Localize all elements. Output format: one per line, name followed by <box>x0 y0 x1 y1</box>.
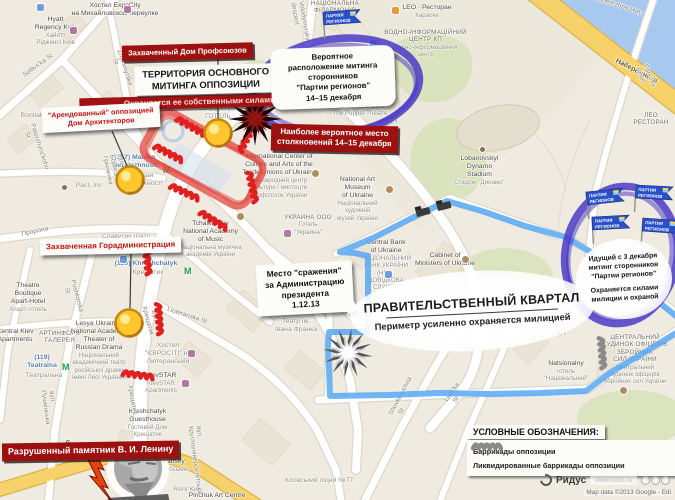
map-label: Lyps'ka St <box>443 388 464 408</box>
dot-poi-icon <box>62 185 67 190</box>
metro-station-icon: M <box>62 362 70 372</box>
bed-poi-icon <box>124 6 131 13</box>
ongoing-rally-guard-text: Охраняется силами милиции и охраной <box>591 285 660 306</box>
map-label: Central Kiev Apartments <box>0 328 38 344</box>
map-label: Parkova Road <box>634 63 654 84</box>
map-label: Shovkovychna St <box>387 399 408 420</box>
poi-poi-icon <box>620 387 627 394</box>
map-label: Theatre Boutique Apart-HotelАпарт-готель <box>4 282 52 313</box>
map-label: Хостел "ЄВРОСІТІ" на Лютеранській <box>142 342 194 366</box>
map-label: Volodymyrskyi descent <box>289 0 307 18</box>
poi-poi-icon <box>462 256 469 263</box>
government-quarter-title: ПРАВИТЕЛЬСТВЕННЫЙ КВАРТАЛ <box>363 290 580 315</box>
map-label: Liuteranska St <box>158 303 216 328</box>
license-icons <box>641 476 670 485</box>
map-label: Hyatt Regency KyivХайятт Рідженсі Київ <box>18 16 93 47</box>
map-label: вул. Круглоуніверситетська <box>186 425 203 441</box>
metro-station-icon: M <box>163 165 171 175</box>
map-label: (119) Teatralna <box>20 354 64 370</box>
callout-presidential-administration-battle: Место "сражения" за Администрацию презид… <box>256 261 355 317</box>
ridus-watermark: www.ridus.ru <box>590 476 637 485</box>
map-label: Natsionalnyготель "Національний" <box>540 360 592 383</box>
map-label: Lobanovskyi Dynamo StadiumСтадіон "Динам… <box>452 155 507 186</box>
map-label: KievSTARKievSTAR Apartments <box>138 372 184 395</box>
ridus-brand: Ридус <box>556 475 586 486</box>
poi-poi-icon <box>312 170 319 177</box>
map-label: Patorzhyns'koho St <box>21 123 41 145</box>
poi-poi-icon <box>237 213 244 220</box>
info-poi-icon <box>385 271 392 278</box>
map-label: Театр ім. Івана Франка <box>272 318 320 334</box>
map-legend: Баррикады оппозиции Ликвидированные барр… <box>467 440 675 476</box>
ongoing-rally-text: Идущий с 3 декабря митинг сторонников "П… <box>588 252 659 283</box>
map-data-attribution: Map data ©2013 Google - Edi <box>584 489 673 496</box>
poi-poi-icon <box>386 186 393 193</box>
map-label: Lesya Ukrainka National Academic Theater… <box>70 320 128 381</box>
callout-captured-city-administration: Захваченная Горадминистрация <box>40 237 182 256</box>
bed-poi-icon <box>70 27 77 34</box>
dot-poi-icon <box>480 147 485 152</box>
map-label: Театральна <box>22 372 66 380</box>
food-poi-icon <box>392 7 399 14</box>
map-label: (217) Maidan Nezalezhnosti <box>100 154 170 170</box>
map-label: Хрещатик <box>126 384 137 403</box>
legend-label: Ликвидированные баррикады оппозиции <box>473 461 625 470</box>
map-label: Pushkinska St <box>61 279 80 300</box>
map-label: Kreshchatyk GuesthouseГостевой Дом Креща… <box>120 408 175 439</box>
map-label: вул. Пушкінська <box>39 389 56 407</box>
metro-station-icon: M <box>184 266 192 276</box>
bed-poi-icon <box>182 380 189 387</box>
map-label: Naberezhne Hwy <box>588 0 647 19</box>
map-label: Хостел ExpoCity на Михайловском переулке <box>60 2 170 18</box>
map-label: Крещатик <box>128 269 168 277</box>
map-label: National Art Museum of UkraineНаціональн… <box>330 176 385 222</box>
callout-probable-clashes: Наиболее вероятное место столкновений 14… <box>271 124 398 153</box>
map-label: Sofiivs'ka St <box>11 45 64 86</box>
map-label: Вул. Хрещатик <box>140 303 162 332</box>
map-label: ЛЕО РЕСТОРАН <box>626 112 675 127</box>
map-label: НАЦІОНАЛЬНА ФІЛАРМОНІЯ <box>305 0 365 15</box>
info-poi-icon <box>120 256 127 263</box>
map-label: LEO · РесторанКараоке <box>398 4 456 19</box>
map-label: International Center of Culture and Arts… <box>238 153 320 199</box>
legend-item-removed-barricades: Ликвидированные баррикады оппозиции <box>473 458 675 472</box>
bed-poi-icon <box>284 230 291 237</box>
info-poi-icon <box>37 4 44 11</box>
gray-zigzag-icon <box>473 445 501 449</box>
bed-poi-icon <box>188 350 195 357</box>
opposition-territory-title: ТЕРРИТОРИЯ ОСНОВНОГО МИТИНГА ОППОЗИЦИИ <box>134 63 277 96</box>
callout-destroyed-lenin-monument: Разрушенный памятник В. И. Ленину <box>2 440 180 461</box>
map-label: Прорізна <box>10 223 60 241</box>
attribution-bar: Ридус www.ridus.ru <box>540 474 670 486</box>
legend-title: УСЛОВНЫЕ ОБОЗНАЧЕНИЯ: <box>467 425 605 439</box>
map-label: Rent Kiev <box>168 486 208 494</box>
map-label: Pinchuk Art Centre <box>186 492 248 500</box>
map-label: АРТИНФОРМ ГАЛЕРЕЯ <box>36 330 84 345</box>
ridus-logo-icon <box>538 472 555 489</box>
callout-probable-regions-rally: Вероятное расположение митинга сторонник… <box>270 45 396 110</box>
map-canvas[interactable]: Хостел ExpoCity на Михайловском переулке… <box>0 0 675 500</box>
map-label: вул. Бориса Грінченка <box>100 152 125 170</box>
government-quarter-subtitle: Периметр усиленно охраняется милицией <box>374 311 570 331</box>
map-label: Майдан Незалежності <box>112 172 170 188</box>
map-label: Pact, Inc <box>68 182 110 190</box>
map-label: Набережне ш. <box>608 54 667 89</box>
map-label: ЦЕНТРАЛЬНИЙ БУДИНОК ОФІЦЕРІВ ЗБРОЙНИХ СИ… <box>596 334 674 386</box>
map-label: Кловський ліцей №77 <box>280 477 358 485</box>
map-label: BesarabskyБессарабський <box>142 458 192 473</box>
